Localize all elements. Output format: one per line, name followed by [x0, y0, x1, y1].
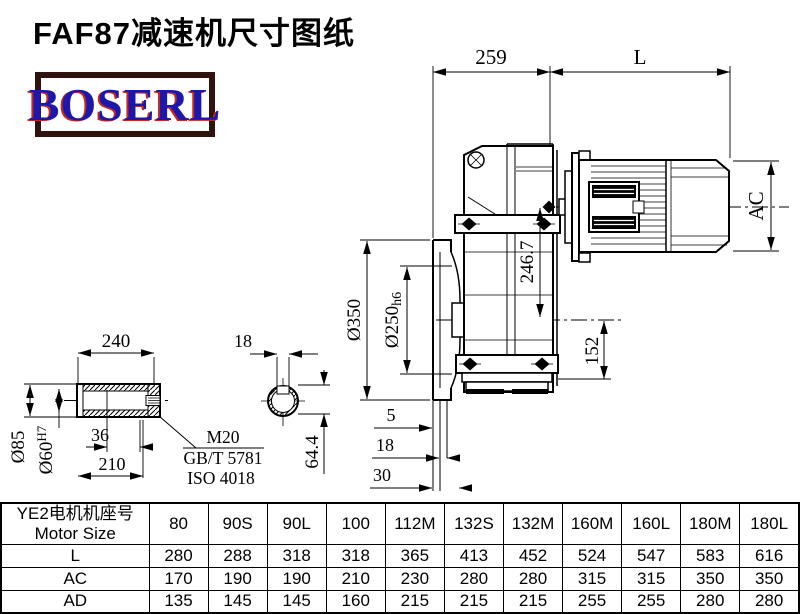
dim-64-4-label: 64.4	[302, 435, 323, 469]
dim-value-cell: 230	[385, 567, 444, 590]
dim-value-cell: 616	[740, 544, 799, 567]
motor-size-table: YE2电机机座号 Motor Size 80 90S 90L 100 112M …	[0, 502, 800, 614]
dim-value-cell: 280	[444, 567, 503, 590]
dim-value-cell: 315	[622, 567, 681, 590]
dim-value-cell: 547	[622, 544, 681, 567]
dim-36-label: 36	[91, 425, 109, 445]
dim-value-cell: 365	[385, 544, 444, 567]
dim-value-cell: 452	[503, 544, 562, 567]
dim-value-cell: 288	[208, 544, 267, 567]
dim-152-label: 152	[582, 337, 603, 366]
dim-value-cell: 145	[267, 590, 326, 613]
dim-value-cell: 160	[326, 590, 385, 613]
dim-value-cell: 413	[444, 544, 503, 567]
row-label: AC	[1, 567, 149, 590]
col-header: 80	[149, 503, 208, 544]
dim-210-label: 210	[99, 454, 126, 474]
dim-value-cell: 280	[740, 590, 799, 613]
dim-value-cell: 135	[149, 590, 208, 613]
motor-size-header-en: Motor Size	[2, 524, 149, 544]
dim-spigot-label: Ø250h6	[382, 292, 405, 348]
hollow-shaft-section-view: 240 Ø85 Ø60H7 36 210 M20 GB/T 5781 ISO 4…	[8, 331, 264, 488]
standard-iso-label: ISO 4018	[187, 468, 255, 488]
main-assembly-view: 259 L Ø350 Ø250h6	[344, 45, 789, 491]
dim-value-cell: 215	[503, 590, 562, 613]
col-header: 132S	[444, 503, 503, 544]
dim-flange-od-label: Ø350	[344, 299, 365, 341]
col-header: 132M	[503, 503, 562, 544]
dim-value-cell: 280	[681, 590, 740, 613]
dim-value-cell: 315	[563, 567, 622, 590]
motor-size-header-cn: YE2电机机座号	[2, 504, 149, 524]
col-header: 90L	[267, 503, 326, 544]
dim-value-cell: 190	[267, 567, 326, 590]
dim-value-cell: 350	[681, 567, 740, 590]
col-header: 180L	[740, 503, 799, 544]
dim-value-cell: 215	[444, 590, 503, 613]
dim-value-cell: 318	[326, 544, 385, 567]
dim-value-cell: 215	[385, 590, 444, 613]
dim-18-flange-label: 18	[376, 435, 394, 455]
col-header: 100	[326, 503, 385, 544]
dim-value-cell: 190	[208, 567, 267, 590]
dim-246-7-label: 246.7	[517, 241, 538, 284]
dim-30-label: 30	[373, 465, 391, 485]
dim-value-cell: 318	[267, 544, 326, 567]
standard-gb-label: GB/T 5781	[184, 448, 263, 468]
dim-bore60-label: Ø60H7	[34, 425, 57, 474]
thread-label: M20	[206, 427, 239, 447]
dim-L-label: L	[634, 45, 647, 69]
col-header: 112M	[385, 503, 444, 544]
dim-value-cell: 145	[208, 590, 267, 613]
dimension-drawing: 259 L Ø350 Ø250h6	[0, 0, 800, 500]
col-header: 160L	[622, 503, 681, 544]
col-header: 90S	[208, 503, 267, 544]
dim-od85-label: Ø85	[8, 431, 29, 464]
row-label: AD	[1, 590, 149, 613]
col-header: 180M	[681, 503, 740, 544]
dim-value-cell: 524	[563, 544, 622, 567]
dim-259-label: 259	[475, 45, 507, 69]
motor-size-header: YE2电机机座号 Motor Size	[1, 503, 149, 544]
dim-value-cell: 210	[326, 567, 385, 590]
row-label: L	[1, 544, 149, 567]
dim-value-cell: 255	[563, 590, 622, 613]
dim-5-label: 5	[387, 405, 396, 425]
dim-value-cell: 280	[149, 544, 208, 567]
dim-value-cell: 170	[149, 567, 208, 590]
dim-value-cell: 255	[622, 590, 681, 613]
dim-240-label: 240	[102, 331, 131, 352]
dim-AC-label: AC	[744, 191, 768, 220]
dim-value-cell: 583	[681, 544, 740, 567]
dim-keyway-18-label: 18	[234, 331, 252, 351]
dim-value-cell: 350	[740, 567, 799, 590]
col-header: 160M	[563, 503, 622, 544]
dim-value-cell: 280	[503, 567, 562, 590]
